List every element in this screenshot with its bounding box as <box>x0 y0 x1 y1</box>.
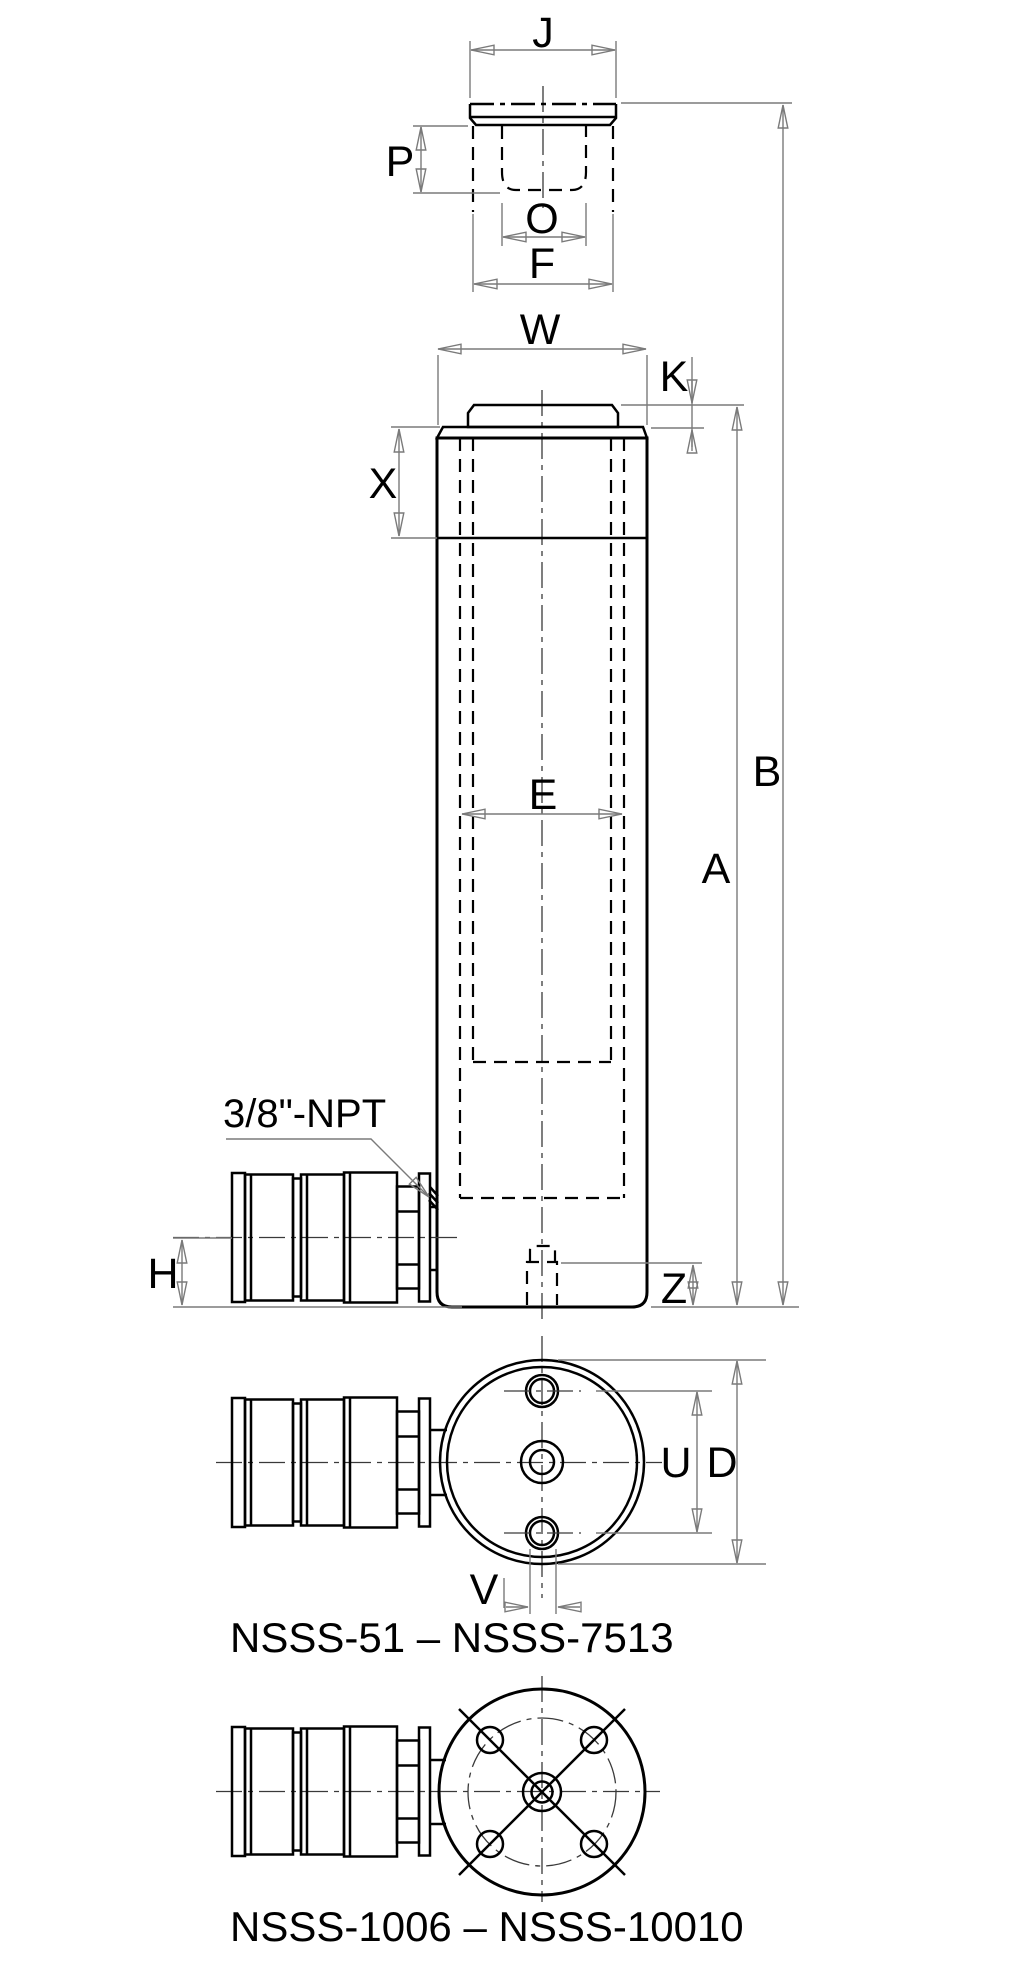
front-view <box>173 390 647 1322</box>
dim-label-a: A <box>702 845 731 893</box>
dim-label-e: E <box>529 771 558 819</box>
dim-label-j: J <box>532 9 554 57</box>
dim-label-d: D <box>706 1439 737 1487</box>
dim-label-w: W <box>520 306 561 354</box>
dim-label-o: O <box>525 195 558 243</box>
caption-large-models: NSSS-1006 – NSSS-10010 <box>230 1903 744 1950</box>
caption-small-models: NSSS-51 – NSSS-7513 <box>230 1614 674 1661</box>
dim-label-f: F <box>529 240 555 288</box>
dim-label-b: B <box>753 748 782 796</box>
saddle-extended-detail <box>413 41 616 292</box>
plunger-saddle <box>468 405 618 427</box>
dim-label-x: X <box>369 460 398 508</box>
dim-label-p: P <box>386 138 415 186</box>
dim-label-z: Z <box>661 1265 687 1313</box>
dim-label-u: U <box>660 1439 691 1487</box>
dim-label-h: H <box>147 1250 178 1298</box>
saddle-bore-hidden-outline <box>502 126 586 190</box>
dim-label-k: K <box>660 353 689 401</box>
dim-label-v: V <box>470 1566 499 1614</box>
port-size-label: 3/8"-NPT <box>223 1092 386 1136</box>
engineering-drawing-sheet: J P O F W K X E B A H Z U D V 3/8"-NPT N… <box>0 0 1010 1966</box>
labels: J P O F W K X E B A H Z U D V 3/8"-NPT N… <box>147 9 781 1950</box>
port-leader-line <box>226 1139 429 1197</box>
end-view-large-models <box>216 1676 660 1902</box>
cylinder-dimensional-drawing: J P O F W K X E B A H Z U D V 3/8"-NPT N… <box>0 0 1010 1966</box>
